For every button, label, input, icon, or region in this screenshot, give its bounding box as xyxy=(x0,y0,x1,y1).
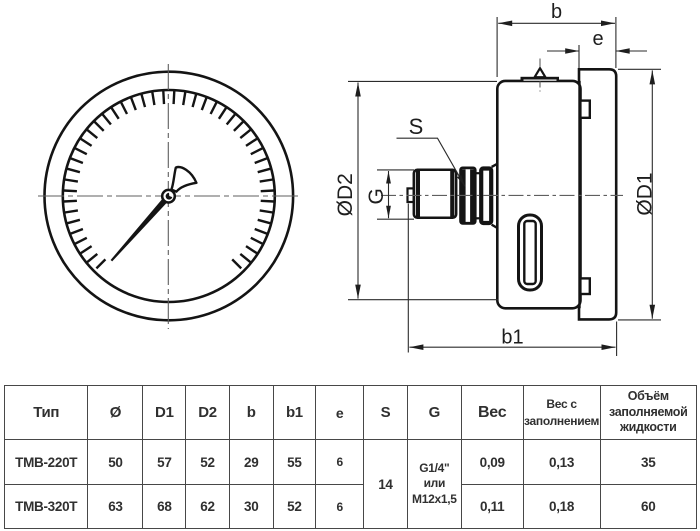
svg-text:b1: b1 xyxy=(501,327,523,349)
svg-text:e: e xyxy=(592,28,603,50)
svg-text:b: b xyxy=(551,1,562,23)
svg-text:ØD1: ØD1 xyxy=(634,172,657,215)
svg-text:ØD2: ØD2 xyxy=(334,173,357,216)
svg-text:S: S xyxy=(409,114,424,139)
svg-text:G: G xyxy=(365,188,388,204)
